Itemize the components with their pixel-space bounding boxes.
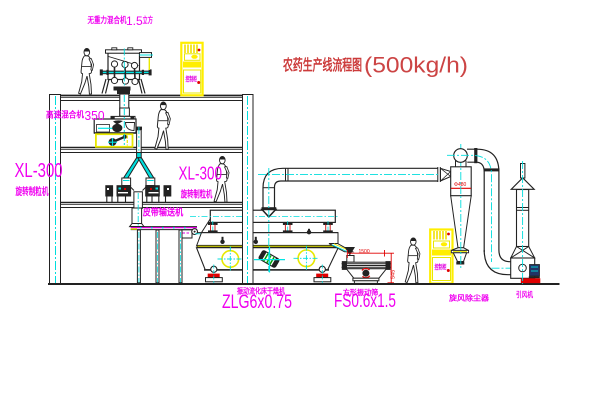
svg-text:控制柜: 控制柜 bbox=[186, 74, 198, 83]
svg-text:(500kg/h): (500kg/h) bbox=[364, 53, 468, 78]
svg-text:旋转制粒机: 旋转制粒机 bbox=[180, 189, 212, 201]
svg-text:1.5: 1.5 bbox=[126, 14, 143, 28]
svg-text:控制柜: 控制柜 bbox=[435, 262, 447, 271]
svg-text:高速混合机: 高速混合机 bbox=[46, 110, 84, 120]
svg-text:皮带输送机: 皮带输送机 bbox=[142, 207, 184, 219]
svg-text:545: 545 bbox=[391, 270, 397, 279]
svg-text:FS0.6x1.5: FS0.6x1.5 bbox=[334, 291, 396, 312]
svg-text:旋转制粒机: 旋转制粒机 bbox=[15, 185, 49, 198]
svg-text:XL-300: XL-300 bbox=[179, 163, 223, 184]
svg-text:350: 350 bbox=[85, 108, 105, 123]
svg-text:无重力混合机: 无重力混合机 bbox=[87, 15, 127, 25]
svg-text:引风机: 引风机 bbox=[516, 290, 534, 299]
svg-text:XL-300: XL-300 bbox=[15, 160, 63, 182]
svg-text:旋风除尘器: 旋风除尘器 bbox=[448, 292, 490, 302]
svg-text:Φ480: Φ480 bbox=[454, 182, 467, 188]
svg-text:1500: 1500 bbox=[359, 249, 370, 255]
svg-text:立方: 立方 bbox=[143, 15, 154, 25]
svg-text:ZLG6x0.75: ZLG6x0.75 bbox=[222, 292, 292, 313]
svg-text:农药生产线流程图: 农药生产线流程图 bbox=[282, 56, 362, 74]
